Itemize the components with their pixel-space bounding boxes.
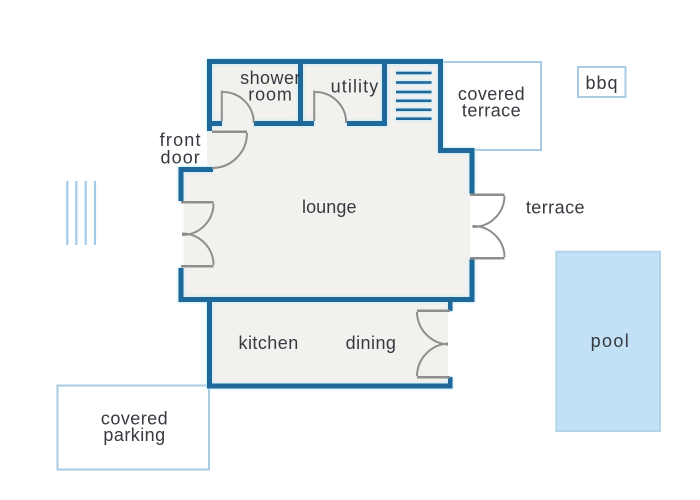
svg-text:door: door xyxy=(160,148,200,168)
svg-text:utility: utility xyxy=(331,77,380,97)
svg-text:dining: dining xyxy=(346,333,397,353)
svg-text:bbq: bbq xyxy=(585,73,618,93)
svg-text:lounge: lounge xyxy=(302,197,357,217)
svg-text:parking: parking xyxy=(103,425,165,445)
svg-text:terrace: terrace xyxy=(462,101,521,121)
svg-text:terrace: terrace xyxy=(526,198,585,218)
svg-text:pool: pool xyxy=(591,331,631,351)
svg-text:kitchen: kitchen xyxy=(239,333,299,353)
svg-text:room: room xyxy=(248,85,293,105)
